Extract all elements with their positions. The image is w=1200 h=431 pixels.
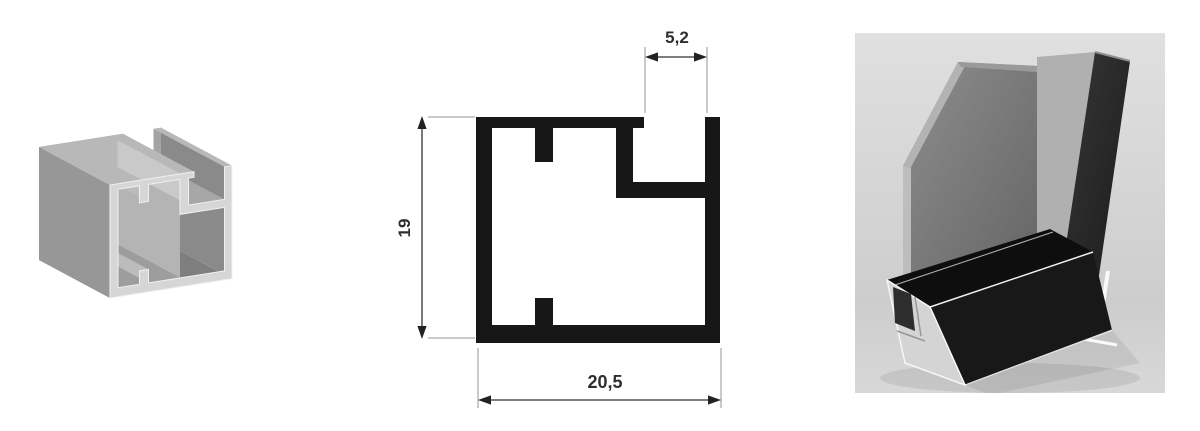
profile-photo — [855, 33, 1165, 393]
dimension-label-slot-width: 5,2 — [665, 28, 689, 47]
profile-outline — [476, 117, 720, 343]
arrow-right-icon — [694, 52, 707, 61]
dimension-width: 20,5 — [478, 348, 721, 408]
dimension-label-height: 19 — [395, 219, 414, 238]
dimension-slot-width: 5,2 — [645, 28, 707, 113]
arrow-right-icon — [708, 395, 721, 404]
dimension-height: 19 — [395, 116, 475, 339]
aluminum-profile-figure: 5,2 19 20,5 — [0, 0, 1200, 431]
arrow-down-icon — [417, 326, 426, 339]
arrow-left-icon — [645, 52, 658, 61]
profile-cross-section-drawing: 5,2 19 20,5 — [380, 0, 780, 431]
profile-3d-view — [30, 113, 240, 308]
arrow-left-icon — [478, 395, 491, 404]
profile-3d-solid — [39, 128, 232, 298]
dimension-label-width: 20,5 — [587, 372, 622, 392]
arrow-up-icon — [417, 116, 426, 129]
